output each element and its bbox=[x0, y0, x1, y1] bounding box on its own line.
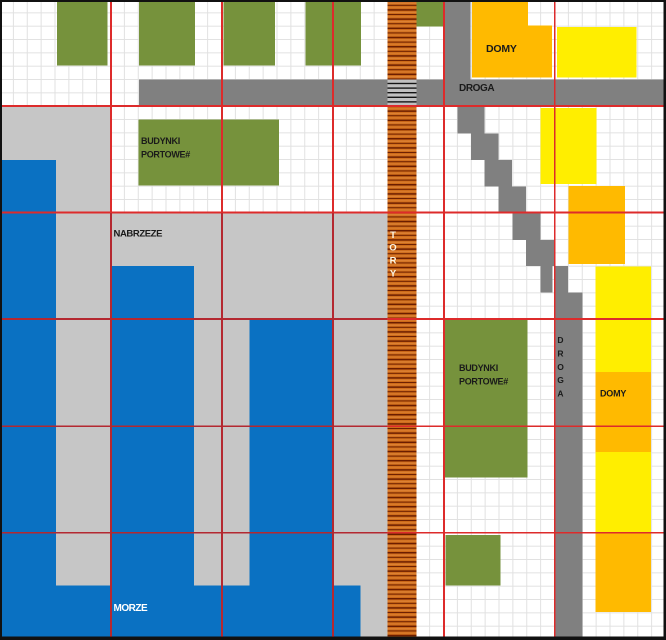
svg-text:T: T bbox=[390, 230, 396, 241]
svg-text:DROGA: DROGA bbox=[459, 83, 494, 94]
svg-text:BUDYNKI: BUDYNKI bbox=[459, 363, 498, 373]
svg-text:G: G bbox=[557, 375, 564, 385]
svg-text:PORTOWE#: PORTOWE# bbox=[459, 377, 508, 387]
svg-text:MORZE: MORZE bbox=[114, 603, 148, 614]
svg-text:NABRZEZE: NABRZEZE bbox=[114, 229, 163, 240]
svg-text:Y: Y bbox=[390, 269, 397, 280]
svg-text:O: O bbox=[557, 362, 564, 372]
svg-text:R: R bbox=[557, 349, 563, 359]
svg-text:D: D bbox=[557, 335, 563, 345]
svg-text:BUDYNKI: BUDYNKI bbox=[141, 136, 180, 146]
svg-text:PORTOWE#: PORTOWE# bbox=[141, 150, 190, 160]
svg-text:R: R bbox=[390, 256, 397, 267]
svg-text:DOMY: DOMY bbox=[600, 389, 626, 399]
svg-text:A: A bbox=[557, 388, 563, 398]
svg-text:O: O bbox=[389, 243, 396, 254]
svg-text:DOMY: DOMY bbox=[486, 43, 517, 55]
